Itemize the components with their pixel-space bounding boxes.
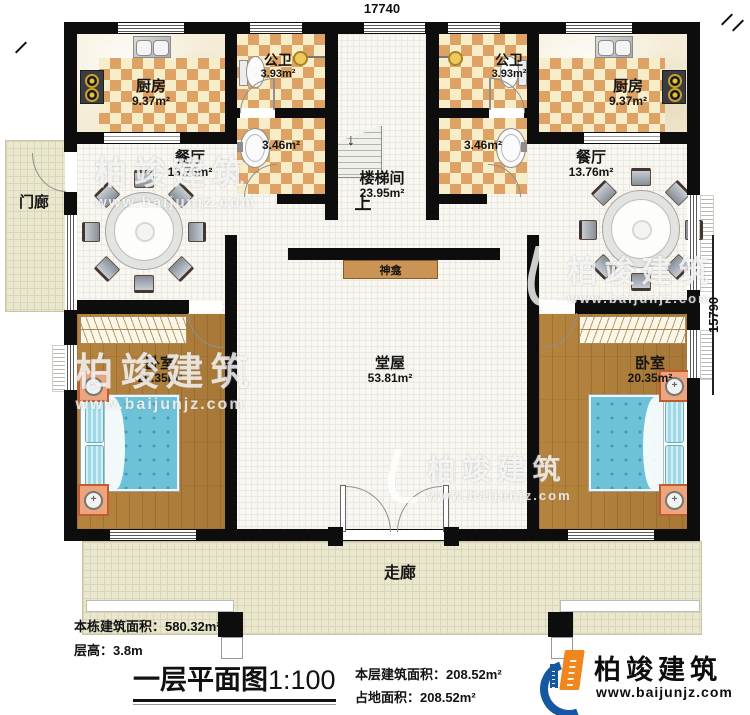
room-area: 3.93m² — [238, 68, 318, 81]
land-area-label: 占地面积： — [355, 690, 420, 705]
nightstand-left-bottom: + — [78, 484, 109, 516]
sink-basin — [615, 40, 631, 56]
room-label-hall: 堂屋 53.81m² — [340, 355, 440, 386]
chair — [631, 273, 651, 291]
window — [65, 345, 76, 390]
chair — [188, 222, 206, 242]
room-name: 厨房 — [101, 78, 201, 95]
column-base-left — [221, 637, 243, 659]
wardrobe-rail — [81, 329, 186, 330]
wall — [527, 235, 539, 529]
room-area: 13.76m² — [541, 166, 641, 180]
room-area: 3.46m² — [443, 139, 523, 153]
logo-block-icon — [550, 664, 558, 688]
door-leaf — [489, 78, 491, 110]
bed-pillow — [665, 445, 684, 487]
wall — [64, 192, 77, 215]
kitchen-sink-right — [595, 36, 633, 58]
table-center — [135, 222, 155, 242]
stairs-direction-arrow: ↓ — [347, 132, 355, 150]
window-sill — [52, 345, 66, 392]
bed-left — [80, 394, 180, 492]
logo-brand-text: 柏竣建筑 — [594, 648, 722, 687]
window — [118, 23, 184, 33]
wall — [687, 22, 700, 195]
room-name: 卧室 — [600, 355, 700, 372]
room-area: 20.35m² — [600, 372, 700, 386]
window — [448, 23, 500, 33]
bedroom-left-door-opening — [189, 301, 222, 313]
room-label-corridor: 走廊 — [368, 565, 432, 583]
room-area: 20.35m² — [110, 372, 210, 386]
dimension-tick — [721, 13, 733, 25]
building-total-area-value: 580.32m² — [165, 619, 221, 634]
nightstand-knob: + — [84, 377, 103, 396]
door-post — [328, 527, 343, 546]
nightstand-knob: + — [84, 491, 103, 510]
floor-height: 层高：3.8m — [74, 640, 143, 659]
room-label-kitchen-left: 厨房 9.37m² — [101, 78, 201, 109]
room-label-bath-right: 公卫 3.93m² — [469, 52, 549, 81]
room-area: 9.37m² — [578, 95, 678, 109]
bed-pillow — [85, 445, 104, 487]
corridor-column-left — [218, 612, 243, 637]
corridor-step-left — [86, 600, 234, 612]
wall — [687, 378, 700, 541]
dining-table-right — [602, 190, 680, 268]
bed-right — [588, 394, 688, 492]
chair — [134, 275, 154, 293]
bed-pillow — [665, 401, 684, 443]
shrine-label: 神龛 — [380, 265, 402, 277]
floor-plan: + + + + ↓ 神龛 — [0, 0, 750, 715]
room-label-wash-left: 3.46m² — [241, 139, 321, 153]
wardrobe-right — [579, 316, 686, 344]
bed-blanket-fold — [643, 397, 663, 489]
burner — [85, 74, 99, 88]
room-label-dining-right: 餐厅 13.76m² — [541, 149, 641, 180]
room-name: 餐厅 — [140, 149, 240, 166]
room-name: 堂屋 — [340, 355, 440, 372]
dimension-tick — [732, 19, 744, 31]
room-name: 公卫 — [469, 52, 549, 68]
room-label-stairwell: 楼梯间 23.95m² — [332, 170, 432, 201]
title-underline-thin — [133, 704, 336, 705]
wall — [439, 194, 487, 204]
window — [250, 23, 302, 33]
nightstand-right-bottom: + — [659, 484, 690, 516]
table-center — [632, 220, 652, 240]
floor-height-value: 3.8m — [113, 643, 143, 658]
burner — [85, 88, 99, 102]
room-name: 厨房 — [578, 78, 678, 95]
wall — [575, 300, 687, 314]
wall — [64, 310, 77, 345]
floor-height-label: 层高： — [74, 643, 113, 658]
plan-scale: 1:100 — [268, 665, 336, 695]
window — [65, 215, 76, 310]
wardrobe-rail — [580, 329, 685, 330]
wall — [687, 290, 700, 330]
room-label-bedroom-left: 卧室 20.35m² — [110, 355, 210, 386]
window — [566, 23, 632, 33]
building-total-area: 本栋建筑面积：580.32m² — [74, 616, 221, 635]
window — [568, 530, 654, 540]
dimension-right: 15790 — [706, 272, 724, 358]
room-name: 楼梯间 — [332, 170, 432, 187]
window — [688, 195, 699, 290]
chair — [82, 222, 100, 242]
nightstand-knob: + — [665, 491, 684, 510]
nightstand-left-top: + — [78, 370, 109, 402]
sink-basin — [598, 40, 614, 56]
logo-website-text: www.baijunjz.com — [596, 684, 733, 700]
wall-lamp-right-knob — [448, 51, 463, 66]
room-name: 餐厅 — [541, 149, 641, 166]
sink-basin — [153, 40, 169, 56]
dining-table-left — [105, 192, 183, 270]
dimension-top: 17740 — [350, 1, 414, 16]
corridor-step-right — [560, 600, 700, 612]
room-area: 9.37m² — [101, 95, 201, 109]
shrine-cabinet: 神龛 — [343, 260, 438, 279]
door-post — [444, 527, 459, 546]
chair — [579, 220, 597, 240]
wall — [225, 235, 237, 529]
stairs-up-label: 上 — [348, 194, 378, 214]
kitchen-sink-left — [133, 36, 171, 58]
window — [364, 23, 425, 33]
room-label-bedroom-right: 卧室 20.35m² — [600, 355, 700, 386]
room-label-kitchen-right: 厨房 9.37m² — [578, 78, 678, 109]
land-area-value: 208.52m² — [420, 690, 476, 705]
plan-title-block: 一层平面图1:100 — [133, 658, 336, 705]
room-area: 3.46m² — [241, 139, 321, 153]
land-area: 占地面积：208.52m² — [355, 687, 476, 706]
room-name: 公卫 — [238, 52, 318, 68]
door-leaf — [443, 485, 449, 532]
wall — [277, 194, 325, 204]
kitchen-left-opening — [104, 133, 180, 143]
floor-area: 本层建筑面积：208.52m² — [355, 664, 502, 683]
plan-title: 一层平面图 — [133, 665, 268, 695]
wall — [527, 34, 539, 144]
building-total-area-label: 本栋建筑面积： — [74, 619, 165, 634]
wardrobe-left — [80, 316, 187, 344]
room-area: 3.93m² — [469, 68, 549, 81]
room-label-bath-left: 公卫 3.93m² — [238, 52, 318, 81]
floor-area-value: 208.52m² — [446, 667, 502, 682]
wall — [64, 390, 77, 541]
floor-area-label: 本层建筑面积： — [355, 667, 446, 682]
room-label-porch: 门廊 — [9, 194, 59, 211]
wall — [225, 34, 237, 144]
door-leaf — [273, 78, 275, 110]
sink-basin — [136, 40, 152, 56]
kitchen-right-opening — [584, 133, 660, 143]
wall — [288, 248, 500, 260]
window — [110, 530, 196, 540]
bedroom-right-door-opening — [542, 301, 575, 313]
room-area: 53.81m² — [340, 372, 440, 386]
title-underline — [133, 699, 336, 702]
room-label-dining-left: 餐厅 13.76m² — [140, 149, 240, 180]
room-area: 23.95m² — [332, 187, 432, 201]
room-label-wash-right: 3.46m² — [443, 139, 523, 153]
wall — [77, 300, 189, 314]
door-leaf — [340, 485, 346, 532]
wall — [64, 22, 77, 152]
room-area: 13.76m² — [140, 166, 240, 180]
company-logo: 柏竣建筑 www.baijunjz.com — [538, 646, 743, 710]
corridor-column-right — [548, 612, 573, 637]
porch-door-opening — [65, 152, 76, 192]
dimension-tick — [15, 41, 27, 53]
bed-pillow — [85, 401, 104, 443]
room-name: 卧室 — [110, 355, 210, 372]
